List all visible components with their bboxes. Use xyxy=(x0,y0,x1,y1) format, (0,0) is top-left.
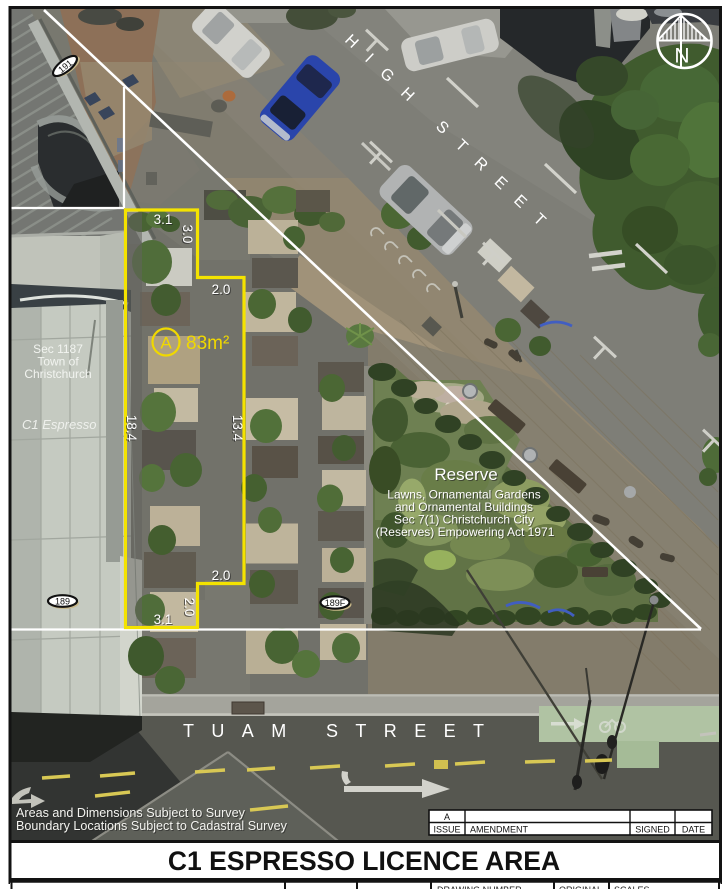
svg-text:N: N xyxy=(674,45,689,68)
svg-text:3.1: 3.1 xyxy=(154,612,173,627)
svg-text:DRAWING NUMBER: DRAWING NUMBER xyxy=(437,885,522,889)
svg-text:SCALES: SCALES xyxy=(614,885,650,889)
svg-text:ISSUE: ISSUE xyxy=(433,825,460,835)
svg-text:189: 189 xyxy=(55,597,70,607)
svg-text:Areas and Dimensions Subject t: Areas and Dimensions Subject to Survey xyxy=(16,806,246,820)
svg-text:TUAM STREET: TUAM STREET xyxy=(183,721,501,741)
svg-text:3.1: 3.1 xyxy=(154,212,173,227)
svg-text:SIGNED: SIGNED xyxy=(635,825,670,835)
svg-text:ORIGINAL: ORIGINAL xyxy=(559,885,602,889)
svg-text:2.0: 2.0 xyxy=(212,282,231,297)
svg-text:189F: 189F xyxy=(325,598,346,608)
svg-text:13.4: 13.4 xyxy=(230,415,245,442)
svg-text:AMENDMENT: AMENDMENT xyxy=(470,825,529,835)
svg-text:Christchurch: Christchurch xyxy=(24,367,91,381)
svg-text:2.0: 2.0 xyxy=(182,598,197,617)
svg-text:Boundary Locations Subject to: Boundary Locations Subject to Cadastral … xyxy=(16,819,288,833)
svg-text:Reserve: Reserve xyxy=(434,465,497,484)
svg-text:C1 Espresso: C1 Espresso xyxy=(22,417,96,432)
svg-text:C1 ESPRESSO LICENCE AREA: C1 ESPRESSO LICENCE AREA xyxy=(168,846,560,876)
svg-text:2.0: 2.0 xyxy=(212,568,231,583)
svg-text:83m²: 83m² xyxy=(186,333,229,354)
svg-text:A: A xyxy=(160,334,172,353)
svg-text:(Reserves) Empowering Act 1971: (Reserves) Empowering Act 1971 xyxy=(376,525,555,539)
svg-text:3.0: 3.0 xyxy=(180,225,195,244)
svg-text:A: A xyxy=(444,812,450,822)
svg-text:DATE: DATE xyxy=(682,825,705,835)
svg-text:18.4: 18.4 xyxy=(124,415,139,442)
